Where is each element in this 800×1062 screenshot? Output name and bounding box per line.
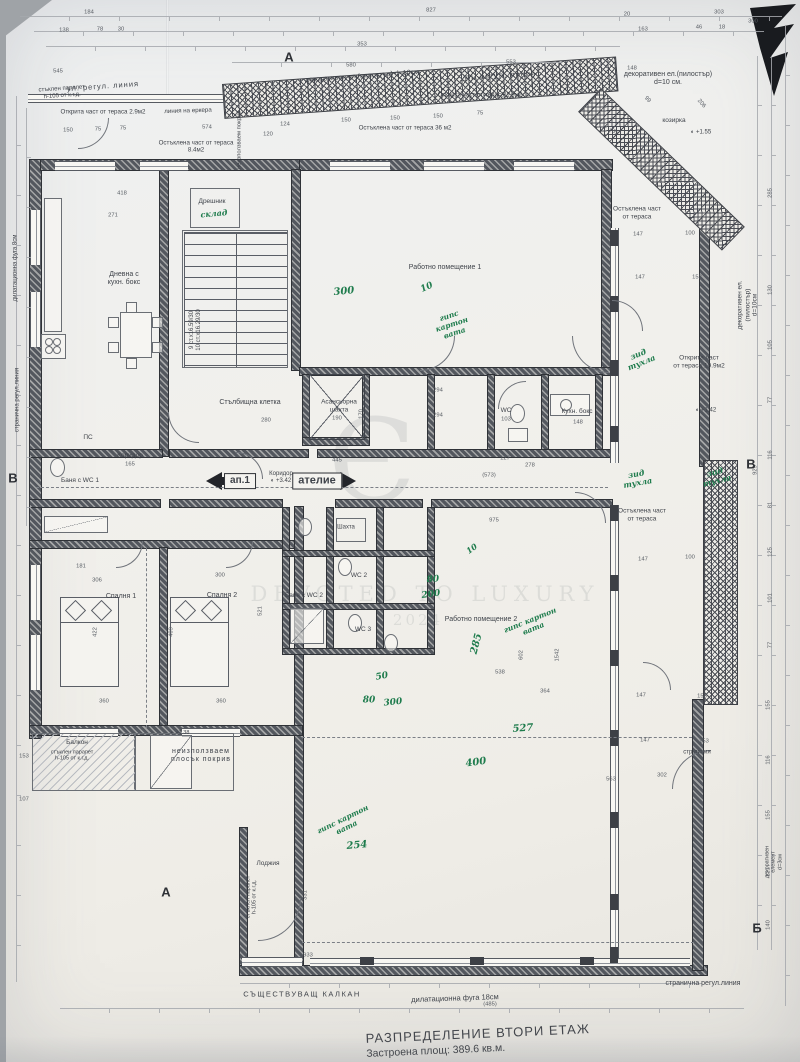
fixture [108,317,119,328]
window-band [242,957,302,967]
dim-label: 521 [258,606,265,616]
pier [610,947,618,963]
dim-label: 138 [59,28,69,35]
dim-label: 300 [748,19,758,26]
dim-label: 303 [714,10,724,17]
plan-label: неизползваем покрив [237,111,244,169]
window-band [424,161,484,171]
plan-label: Остъклена част от тераса 8.4м2 [159,140,234,155]
pier [580,957,594,965]
dimension-line [16,96,21,982]
plan-label: странична регул.линия [14,368,21,432]
plan-label: Спалня 2 [207,592,237,600]
dim-label: 181 [76,564,86,571]
wall [377,508,383,654]
dimension-line [757,56,762,950]
plan-label: Баня с WC 2 [285,592,323,600]
wall [160,170,168,456]
dash-line [302,737,692,738]
plan-label: декоративен ел.(пилостър) d=10см [737,279,760,331]
plan-label: Остъклена част от тераса [613,205,661,220]
wall [542,375,548,455]
pier [360,957,374,965]
plan-label: Шахта [337,524,355,531]
wall [292,170,300,370]
dim-label: 148 [627,66,637,73]
dim-label: 331 [303,890,310,900]
wall [596,375,602,455]
door-arc [643,662,671,690]
dim-label: 150 [63,128,73,135]
dim-label: 75 [477,111,483,118]
dash-line [146,548,147,728]
fixture [152,342,163,353]
dim-label: 116 [768,450,775,459]
window-band [30,210,41,265]
plan-label: ◐ +1.38 [171,730,190,736]
wall [488,375,494,455]
dim-label: 124 [280,122,290,129]
dim-label: 81 [768,502,775,508]
dim-label: 538 [495,670,505,677]
dimension-line [20,16,782,21]
plan-label: стъклен парапет h-105 от к.г.д. [246,876,259,919]
dim-label: 75 [120,126,126,133]
wall [283,649,434,654]
dim-label: 574 [202,125,212,132]
plan-label: Открита част от тераса 1.9м2 [438,91,523,98]
door-arc [168,412,199,443]
wall [240,966,707,975]
window-band [140,161,188,171]
dim-label: 153 [19,754,29,761]
photo-background: Є DEVOTED TO LUXURY 2024 ул. регул. лини… [0,0,800,1062]
plan-label: Баня с WC 1 [61,477,99,485]
dash-line [302,942,694,943]
green-note: 254 [346,839,368,853]
dim-label: 18 [719,25,725,32]
plan-label: WC [501,407,512,415]
plan-label: ◐ +1.42 [696,407,716,414]
dim-label: 105 [768,340,775,350]
pier [610,575,618,591]
dimension-line [46,46,620,51]
dim-label: 563 [606,777,616,784]
fixture [44,516,108,533]
green-note: 400 [465,756,487,771]
floor-plan: Є DEVOTED TO LUXURY 2024 ул. регул. лини… [0,0,800,1062]
dim-label: 153 [699,739,709,746]
fixture [126,302,137,313]
plan-label: Дрешник [199,198,226,206]
dim-label: 107 [19,797,29,804]
dim-label: 418 [117,191,127,198]
dim-label: 78 [97,27,103,34]
dim-label: 99 [642,95,651,104]
dim-label: 100 [685,231,695,238]
green-note: гипс картон вата [503,606,561,643]
plan-label: Стълбищна клетка [219,399,280,407]
green-note: 80 [426,574,439,586]
plan-label: ◐ +1.55 [691,129,711,136]
dim-label: 101 [768,593,775,603]
fixture [108,342,119,353]
dim-label: (573) [482,473,496,480]
dim-label: 100 [685,555,695,562]
plan-label: декоративен ел.(пилостър) d=10 см. [624,71,712,88]
dim-label: 155 [766,810,773,820]
dim-label: 153 [692,275,702,282]
dim-label: 306 [92,578,102,585]
fixture [50,458,65,477]
green-note: зид тухла [621,467,653,491]
green-note: 300 [333,285,355,299]
window-band [330,161,390,171]
dim-label: 409 [169,627,176,637]
fixture [45,338,53,346]
plan-label: Кухн. бокс [562,408,593,416]
dim-label: 75 [95,127,101,134]
fixture [44,198,62,332]
plan-label: Спалня 1 [106,593,136,601]
plan-label: Работно помещение 1 [409,264,481,272]
wall [700,226,709,466]
dim-label: 150 [341,118,351,125]
plan-label: Балкон [66,739,88,747]
pier [610,650,618,666]
dim-label: 121 [766,867,773,877]
plan-label: Коридор ◐ +3.42 [269,471,293,485]
pier [610,360,618,376]
dimension-line [785,26,790,1006]
dim-label: 77 [768,397,775,403]
plan-label: WC 2 [351,572,367,580]
dim-label: 150 [433,114,443,121]
fixture [510,404,525,423]
plan-label: Дневна с кухн. бокс [108,271,140,288]
dim-label: 294 [433,413,443,420]
pier [610,894,618,910]
plan-label: неизползваем плосък покрив [171,748,231,765]
green-note: гипс картон вата [316,804,374,844]
plan-label: странична регул.линия [666,980,741,988]
plan-label: Открита част от тераса 2.9м2 [61,108,146,115]
pier [610,505,618,521]
fixture [53,338,61,346]
dim-label: 46 [696,25,702,32]
fixture [290,608,324,644]
dim-label: 302 [657,773,667,780]
dim-label: 827 [426,8,436,15]
fixture [298,518,312,536]
dim-label: 163 [638,27,648,34]
dim-label: 280 [261,418,271,425]
dimension-line [34,31,764,36]
plan-label: дилатационна фуга 8см [12,235,19,302]
dimension-line [60,1008,744,1013]
plan-label: линия на еркера [164,107,212,116]
door-arc [612,300,643,331]
pier [610,812,618,828]
dim-label: 103 [501,417,511,424]
dim-label: 285 [768,188,775,198]
plan-label: Открита част от тераса 19.9м2 [673,354,724,369]
dimension-line [26,108,31,526]
wall [30,541,298,548]
dim-label: 127 [500,456,510,463]
dim-label: 147 [633,232,643,239]
plan-label: ПС [83,434,92,442]
dim-label: 422 [93,627,100,637]
dim-label: 360 [216,699,226,706]
dim-label: 147 [638,557,648,564]
dim-label: 553 [506,60,516,67]
dim-label: 30 [118,27,124,34]
dim-label: 125 [768,547,775,557]
green-note: 10 [419,281,435,296]
dim-label: 190 [332,416,342,423]
section-marker: А [161,884,170,899]
fixture [120,312,152,358]
dim-label: 294 [433,388,443,395]
dim-label: 147 [636,693,646,700]
fixture [53,346,61,354]
dim-label: 153 [697,694,707,701]
window-band [514,161,574,171]
dim-label: 364 [540,689,550,696]
section-marker: А [284,49,293,64]
green-note: 285 [469,632,486,655]
dim-label: 184 [84,10,94,17]
door-arc [116,541,143,568]
pier [610,730,618,746]
plan-label: Остъклена част от тераса [618,507,666,522]
green-note: 50 [375,671,389,684]
plan-label: WC 3 [355,626,371,634]
plan-label: стъклен парапет h-105 от к.г.д. [51,750,94,763]
wall [30,500,160,507]
fixture [45,346,53,354]
wall [170,500,282,507]
dim-label: 545 [53,69,63,76]
dim-label: 933 [303,953,313,960]
fixture [152,317,163,328]
plan-label: 9 ст.х16.59/30 10 ст.х16.29/30 [189,309,203,350]
dim-label: 147 [640,738,650,745]
fixture [508,428,528,442]
window-band [55,161,115,171]
trellis-band [703,460,738,705]
plan-label: Остъклена част от тераса 36 м2 [359,124,452,131]
dim-label: 77 [768,642,775,648]
section-marker: В [8,470,17,485]
fixture [384,634,398,652]
plan-label: СЪЩЕСТВУВАЩ КАЛКАН [243,991,361,1000]
plan-label: Асансьорна шахта [321,398,357,413]
wall [160,548,167,728]
section-marker: Б [752,920,761,935]
green-note: 80 [363,696,376,707]
plan-label: стр.линия [683,749,711,756]
wall [283,508,289,654]
door-arc [420,336,455,371]
wall [318,450,612,457]
dim-label: 602 [519,650,526,660]
green-note: зид тухла [623,345,657,373]
green-note: 10 [465,542,480,556]
dim-label: 278 [525,463,535,470]
window-band [30,565,41,620]
fixture [126,358,137,369]
plan-label: Работно помещение 2 [445,616,517,624]
plan-label: Коридор [117,452,143,460]
dim-label: 150 [390,116,400,123]
dim-label: 148 [573,420,583,427]
door-arc [78,118,109,149]
plan-label: козирка [662,117,685,125]
dim-label: 300 [215,573,225,580]
dim-label: 170 [359,409,366,419]
dim-label: 1542 [555,649,562,662]
dim-label: 20 [624,12,630,19]
dim-label: 206 [695,98,707,110]
dim-label: 271 [108,213,118,220]
atelier-label-box: ателие [292,473,342,490]
green-note: 300 [383,697,403,710]
door-arc [226,541,253,568]
dim-label: 580 [346,63,356,70]
wall [327,508,333,654]
dim-label: 360 [99,699,109,706]
dim-label: 445 [332,458,342,465]
section-marker: В [746,456,755,471]
dim-label: 120 [263,132,273,139]
plan-label: Лоджия [256,860,279,868]
dim-label: 975 [489,518,499,525]
dim-label: 116 [766,755,773,764]
dim-label: 130 [768,285,775,295]
door-arc [575,492,606,523]
wall [283,551,434,556]
pier [610,426,618,442]
watermark-year: 2024 [393,611,443,629]
dim-label: (485) [483,1002,497,1009]
apartment-label-box: ап.1 [224,473,256,489]
pier [470,957,484,965]
window-band [30,635,41,690]
green-note: гипс картон вата [432,307,472,343]
pier [610,230,618,246]
dim-label: 147 [635,275,645,282]
wall [336,500,422,507]
window-band [30,292,41,347]
dim-label: 353 [357,42,367,49]
dim-label: 165 [125,462,135,469]
dim-label: 140 [766,920,773,930]
dimension-line [240,983,702,988]
green-note: 527 [512,722,534,735]
dim-label: 155 [766,700,773,710]
